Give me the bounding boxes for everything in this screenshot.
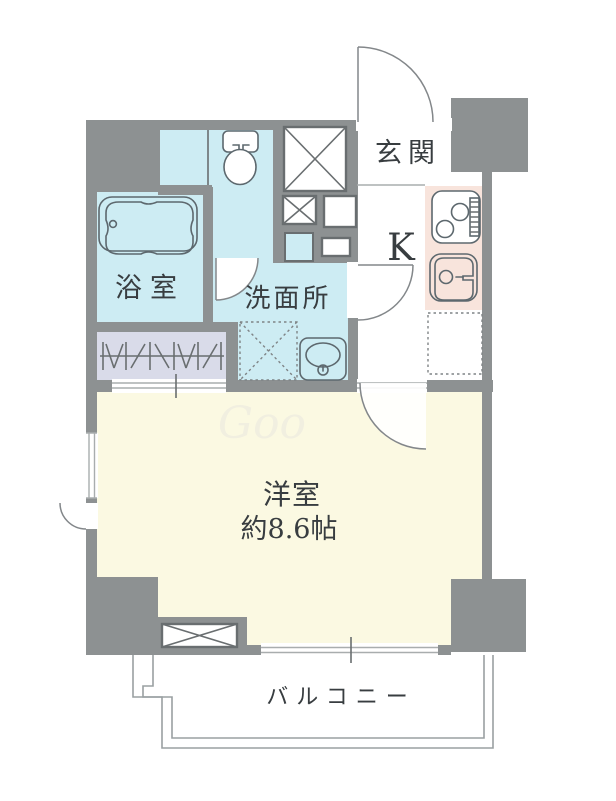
entrance-label: 玄関 [375,138,441,169]
wall-segment [226,322,238,392]
shaft-box-large [284,127,346,191]
balcony-label: バルコニー [266,685,416,710]
washroom-label: 洗面所 [244,284,331,314]
wall-segment [86,529,97,578]
left-window-opening [85,433,98,498]
floorplan-canvas: Goo [0,0,616,801]
service-box-cyan [285,233,313,261]
wall-segment [247,645,262,655]
refrigerator-space [428,313,482,374]
wall-segment [97,380,112,392]
wall-segment [426,380,493,392]
balcony-window-opening [261,643,438,656]
wall-segment [86,120,160,192]
western-room-label: 洋室 [263,478,321,511]
washroom-door-opening [347,262,359,318]
floorplan-drawing: Goo [0,0,616,801]
watermark-text: Goo [218,398,306,449]
wall-segment [437,645,451,655]
wall-segment [86,120,97,433]
western-room-size-label: 約8.6帖 [241,514,338,545]
service-box-white [324,196,356,227]
wall-segment [86,322,238,332]
corner-pillar [451,579,526,652]
wall-segment [482,172,492,580]
entrance-door-arc [358,47,433,122]
stove-icon [432,191,480,243]
wall-segment [226,380,358,392]
wall-segment [203,187,213,330]
bathroom-label: 浴室 [115,273,185,304]
toilet-icon [223,131,258,185]
left-door-opening [85,503,98,529]
closet-door-opening [112,379,226,393]
wall-segment [86,577,158,655]
left-outswing-door-arc [60,503,86,529]
service-box-white-small [322,238,350,256]
washroom-hall-door-arc [358,265,413,320]
kitchen-label: K [387,226,416,269]
corner-pillar [451,98,528,172]
toilet-room-passage-floor [207,187,273,262]
pipe-shaft-box-bottom [162,624,237,647]
shaft-box-small [283,196,316,224]
entrance-door-opening [356,118,452,131]
